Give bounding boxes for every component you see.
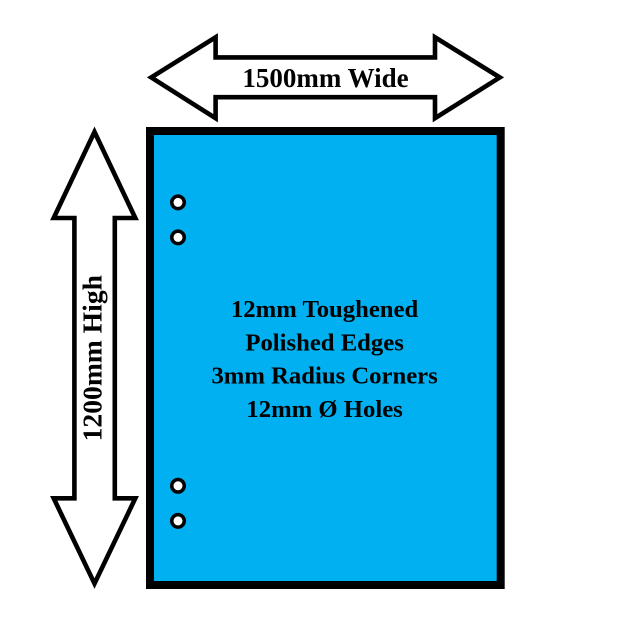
svg-text:12mm Toughened: 12mm Toughened — [231, 296, 419, 323]
svg-text:12mm Ø Holes: 12mm Ø Holes — [246, 396, 402, 423]
svg-text:Polished Edges: Polished Edges — [245, 329, 403, 356]
svg-text:1500mm Wide: 1500mm Wide — [242, 63, 408, 93]
svg-text:3mm Radius Corners: 3mm Radius Corners — [211, 363, 437, 390]
svg-text:1200mm High: 1200mm High — [76, 275, 107, 441]
